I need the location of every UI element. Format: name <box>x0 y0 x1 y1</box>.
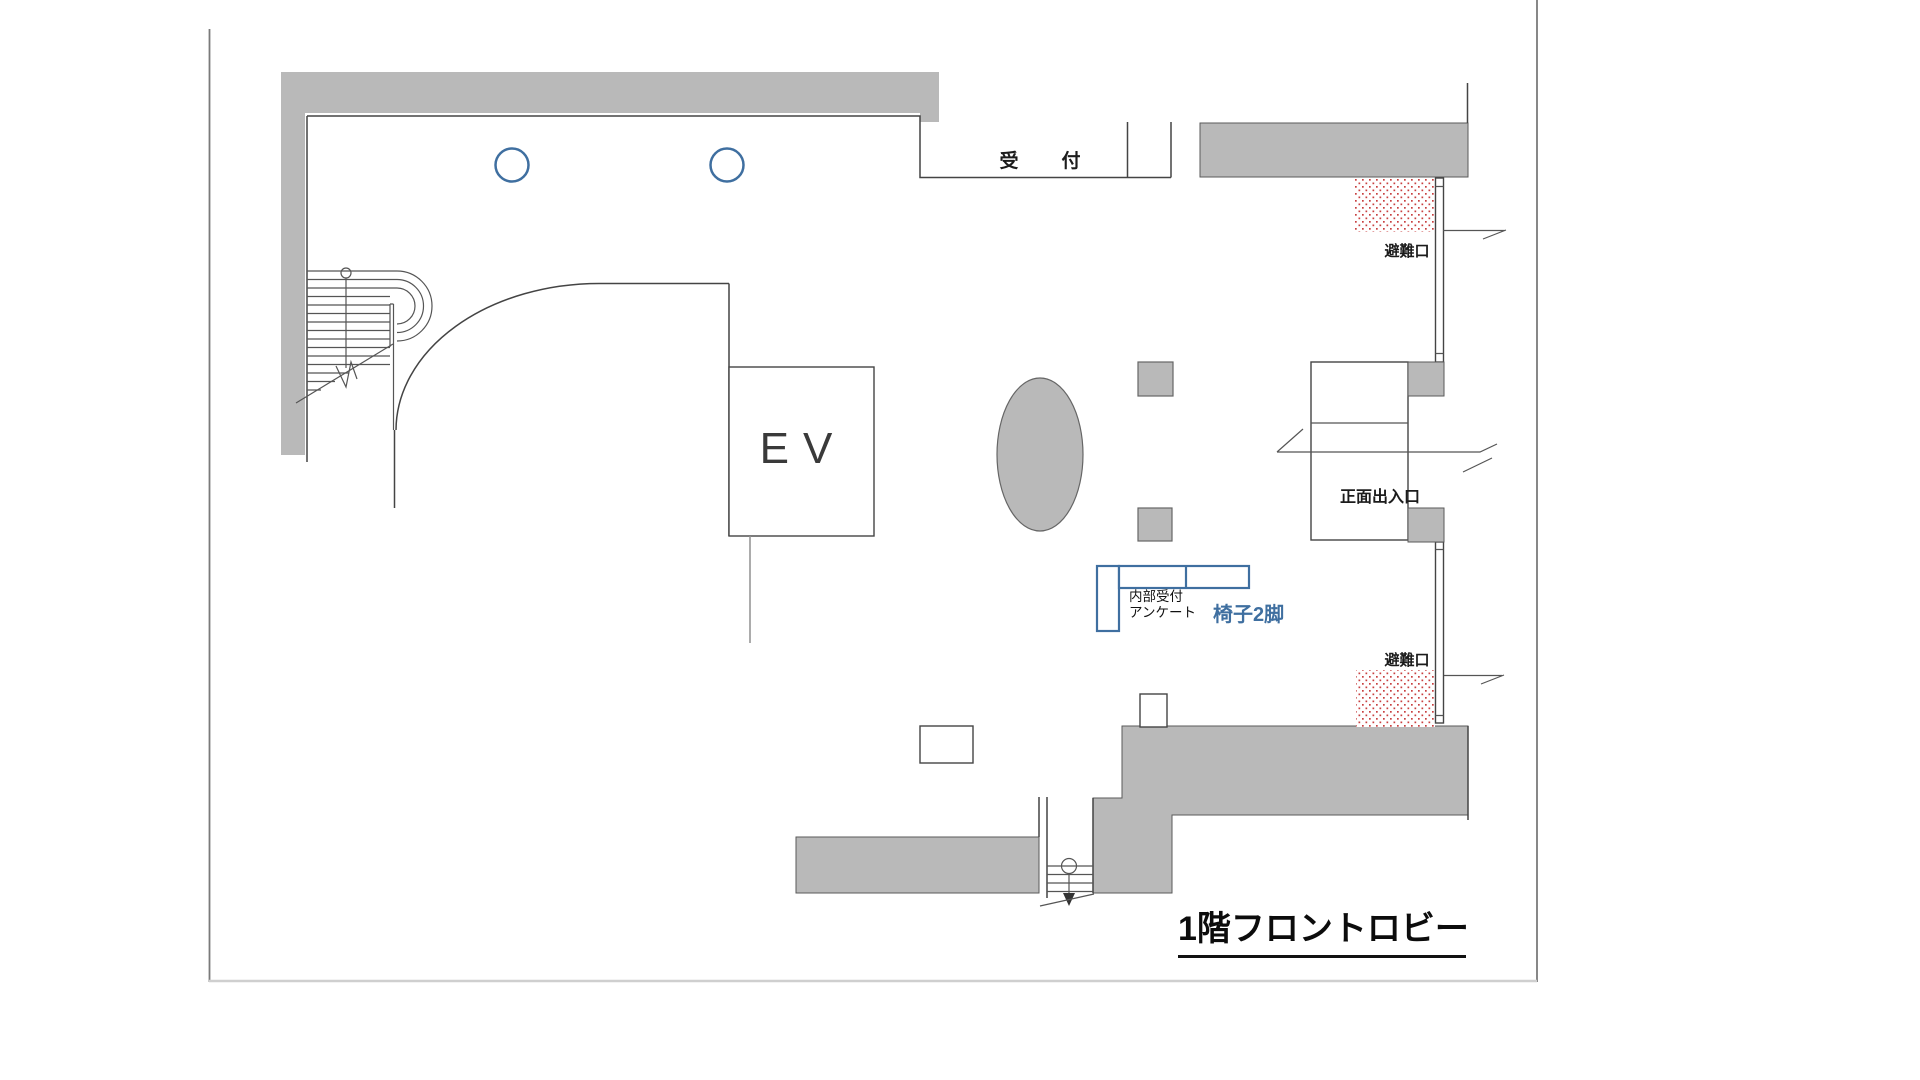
wall-top-right-block <box>1200 123 1468 177</box>
emergency-exit-bottom-label: 避難口 <box>1357 649 1457 670</box>
wall-bottom-right-stepped <box>1093 726 1468 893</box>
stair-treads <box>307 271 397 390</box>
wall-left <box>281 113 305 455</box>
wall-top-bar <box>281 72 939 113</box>
stair-inner-rail <box>390 304 394 430</box>
elevator-label: EV <box>741 424 865 474</box>
wall-top-step <box>920 113 939 122</box>
floor-title: 1階フロントロビー <box>1178 901 1466 958</box>
pillar-circle-left <box>496 149 529 182</box>
floor-plan-drawing <box>0 0 1920 1080</box>
internal-desk-label-line2: アンケート <box>1129 605 1196 621</box>
main-staircase <box>296 268 432 430</box>
reception-label: 受 付 <box>980 146 1112 173</box>
main-entrance-structure <box>1277 362 1497 542</box>
entrance-pier-top <box>1408 362 1444 396</box>
exit-hatch-bottom <box>1356 670 1435 727</box>
entrance-vestibule <box>1311 362 1408 540</box>
exit-arrow-top <box>1443 230 1506 239</box>
emergency-exit-top-label: 避難口 <box>1357 240 1457 261</box>
main-entrance-label: 正面出入口 <box>1318 483 1442 507</box>
reception-desk-front <box>1119 566 1249 588</box>
chairs-note-label: 椅子2脚 <box>1213 598 1284 627</box>
internal-desk-label: 内部受付 アンケート <box>1129 589 1196 621</box>
curved-wall-arc <box>396 284 599 431</box>
lobby-square-top <box>1138 362 1173 396</box>
lobby-oval-table <box>997 378 1083 531</box>
floor-plan-canvas: 受 付 避難口 避難口 正面出入口 EV 内部受付 アンケート 椅子2脚 1階フ… <box>0 0 1920 1080</box>
rear-door-box <box>1140 694 1167 727</box>
exit-hatch-top <box>1355 178 1435 232</box>
pillar-circle-right <box>711 149 744 182</box>
reception-desk-side <box>1097 566 1119 631</box>
wall-bottom-left-bar <box>796 837 1039 893</box>
rear-staircase <box>1039 797 1094 906</box>
rear-stair-treads <box>1047 866 1093 892</box>
internal-desk-label-line1: 内部受付 <box>1129 589 1196 605</box>
entrance-pier-bottom <box>1408 508 1444 542</box>
lobby-furniture <box>920 362 1249 763</box>
door-track-bottom <box>1436 542 1444 723</box>
bench-box <box>920 726 973 763</box>
stair-return-arcs <box>397 271 432 341</box>
stair-newel-circle <box>341 268 351 278</box>
exit-arrow-bottom <box>1444 675 1504 684</box>
lobby-square-bottom <box>1138 508 1172 541</box>
door-track-top <box>1436 178 1444 362</box>
